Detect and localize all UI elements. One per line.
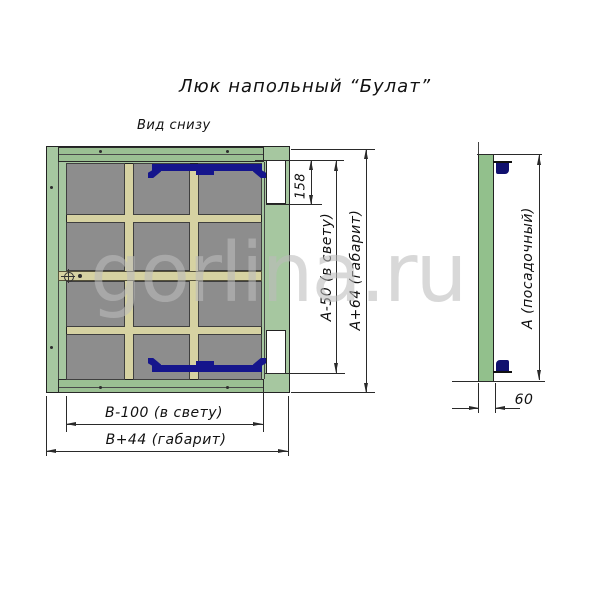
- dim-label-height-clear: А-50 (в свету): [319, 213, 335, 322]
- dim-arrow: [364, 383, 368, 393]
- extension-line: [288, 396, 289, 456]
- dim-arrow: [537, 155, 541, 165]
- lock-stiffener: [58, 271, 262, 281]
- insulation-panel: [133, 281, 190, 327]
- rail-seam: [59, 387, 263, 388]
- insulation-panel: [66, 163, 125, 215]
- insulation-panel: [133, 222, 190, 271]
- screw-dot: [50, 346, 53, 349]
- insulation-panel: [198, 222, 262, 271]
- lock-crosshair-icon: [64, 272, 74, 282]
- latch-hook-icon: [493, 371, 512, 373]
- lock-crosshair-icon: [68, 269, 69, 283]
- dim-line-width-clear: [66, 424, 263, 425]
- view-label: Вид снизу: [137, 118, 211, 133]
- extension-line: [265, 373, 345, 374]
- dim-arrow: [66, 422, 76, 426]
- extension-line: [452, 381, 545, 382]
- technical-drawing: Люк напольный “Булат” Вид снизу: [0, 0, 600, 600]
- dim-arrow: [309, 195, 313, 205]
- lock-pin-dot: [78, 274, 82, 278]
- dim-label-seat-height: А (посадочный): [520, 207, 536, 329]
- extension-line: [263, 393, 264, 432]
- drawing-title: Люк напольный “Булат”: [10, 76, 600, 97]
- hinge-slot-cutout: [266, 330, 286, 374]
- insulation-panel: [133, 334, 190, 380]
- dim-arrow: [469, 406, 479, 410]
- frame-bottom-rail: [58, 379, 264, 393]
- opening-edge-line: [264, 162, 265, 379]
- extension-line: [291, 149, 375, 150]
- extension-line: [255, 160, 344, 161]
- dim-label-height-overall: А+64 (габарит): [348, 210, 364, 331]
- rail-seam: [59, 154, 263, 155]
- hinge-tab: [196, 170, 214, 175]
- dim-arrow: [309, 160, 313, 170]
- dim-line-width-overall: [46, 451, 288, 452]
- screw-dot: [226, 150, 229, 153]
- dim-arrow: [253, 422, 263, 426]
- latch-hook-icon: [496, 360, 509, 371]
- insulation-panel: [66, 281, 125, 327]
- hinge-slot-cutout: [266, 160, 286, 204]
- side-profile-bar: [478, 154, 494, 382]
- hinge-bar-bottom: [152, 365, 262, 372]
- dim-label-thickness: 60: [515, 392, 534, 408]
- dim-arrow: [334, 161, 338, 171]
- dim-label-cutout: 158: [294, 173, 309, 199]
- insulation-panel: [198, 281, 262, 327]
- dim-line-height-clear: [336, 161, 337, 373]
- dim-arrow: [46, 449, 56, 453]
- dim-arrow: [278, 449, 288, 453]
- screw-dot: [50, 186, 53, 189]
- insulation-panel: [66, 222, 125, 271]
- extension-line: [46, 396, 47, 456]
- extension-line: [478, 142, 479, 154]
- extension-line: [266, 204, 322, 205]
- dim-arrow: [364, 149, 368, 159]
- insulation-panel: [66, 334, 125, 380]
- insulation-panel: [198, 334, 262, 380]
- hinge-tab: [196, 361, 214, 366]
- screw-dot: [99, 386, 102, 389]
- screw-dot: [226, 386, 229, 389]
- dim-arrow: [334, 363, 338, 373]
- extension-line: [66, 396, 67, 432]
- extension-line: [477, 154, 542, 155]
- frame-top-rail: [58, 147, 264, 162]
- latch-hook-icon: [496, 163, 509, 174]
- dim-label-width-clear: В-100 (в свету): [105, 405, 223, 421]
- dim-arrow: [537, 370, 541, 380]
- dim-line-seat-height: [539, 155, 540, 380]
- screw-dot: [99, 150, 102, 153]
- extension-line: [291, 392, 375, 393]
- dim-arrow: [495, 406, 505, 410]
- dim-label-width-overall: В+44 (габарит): [106, 432, 227, 448]
- dim-line-height-overall: [366, 149, 367, 393]
